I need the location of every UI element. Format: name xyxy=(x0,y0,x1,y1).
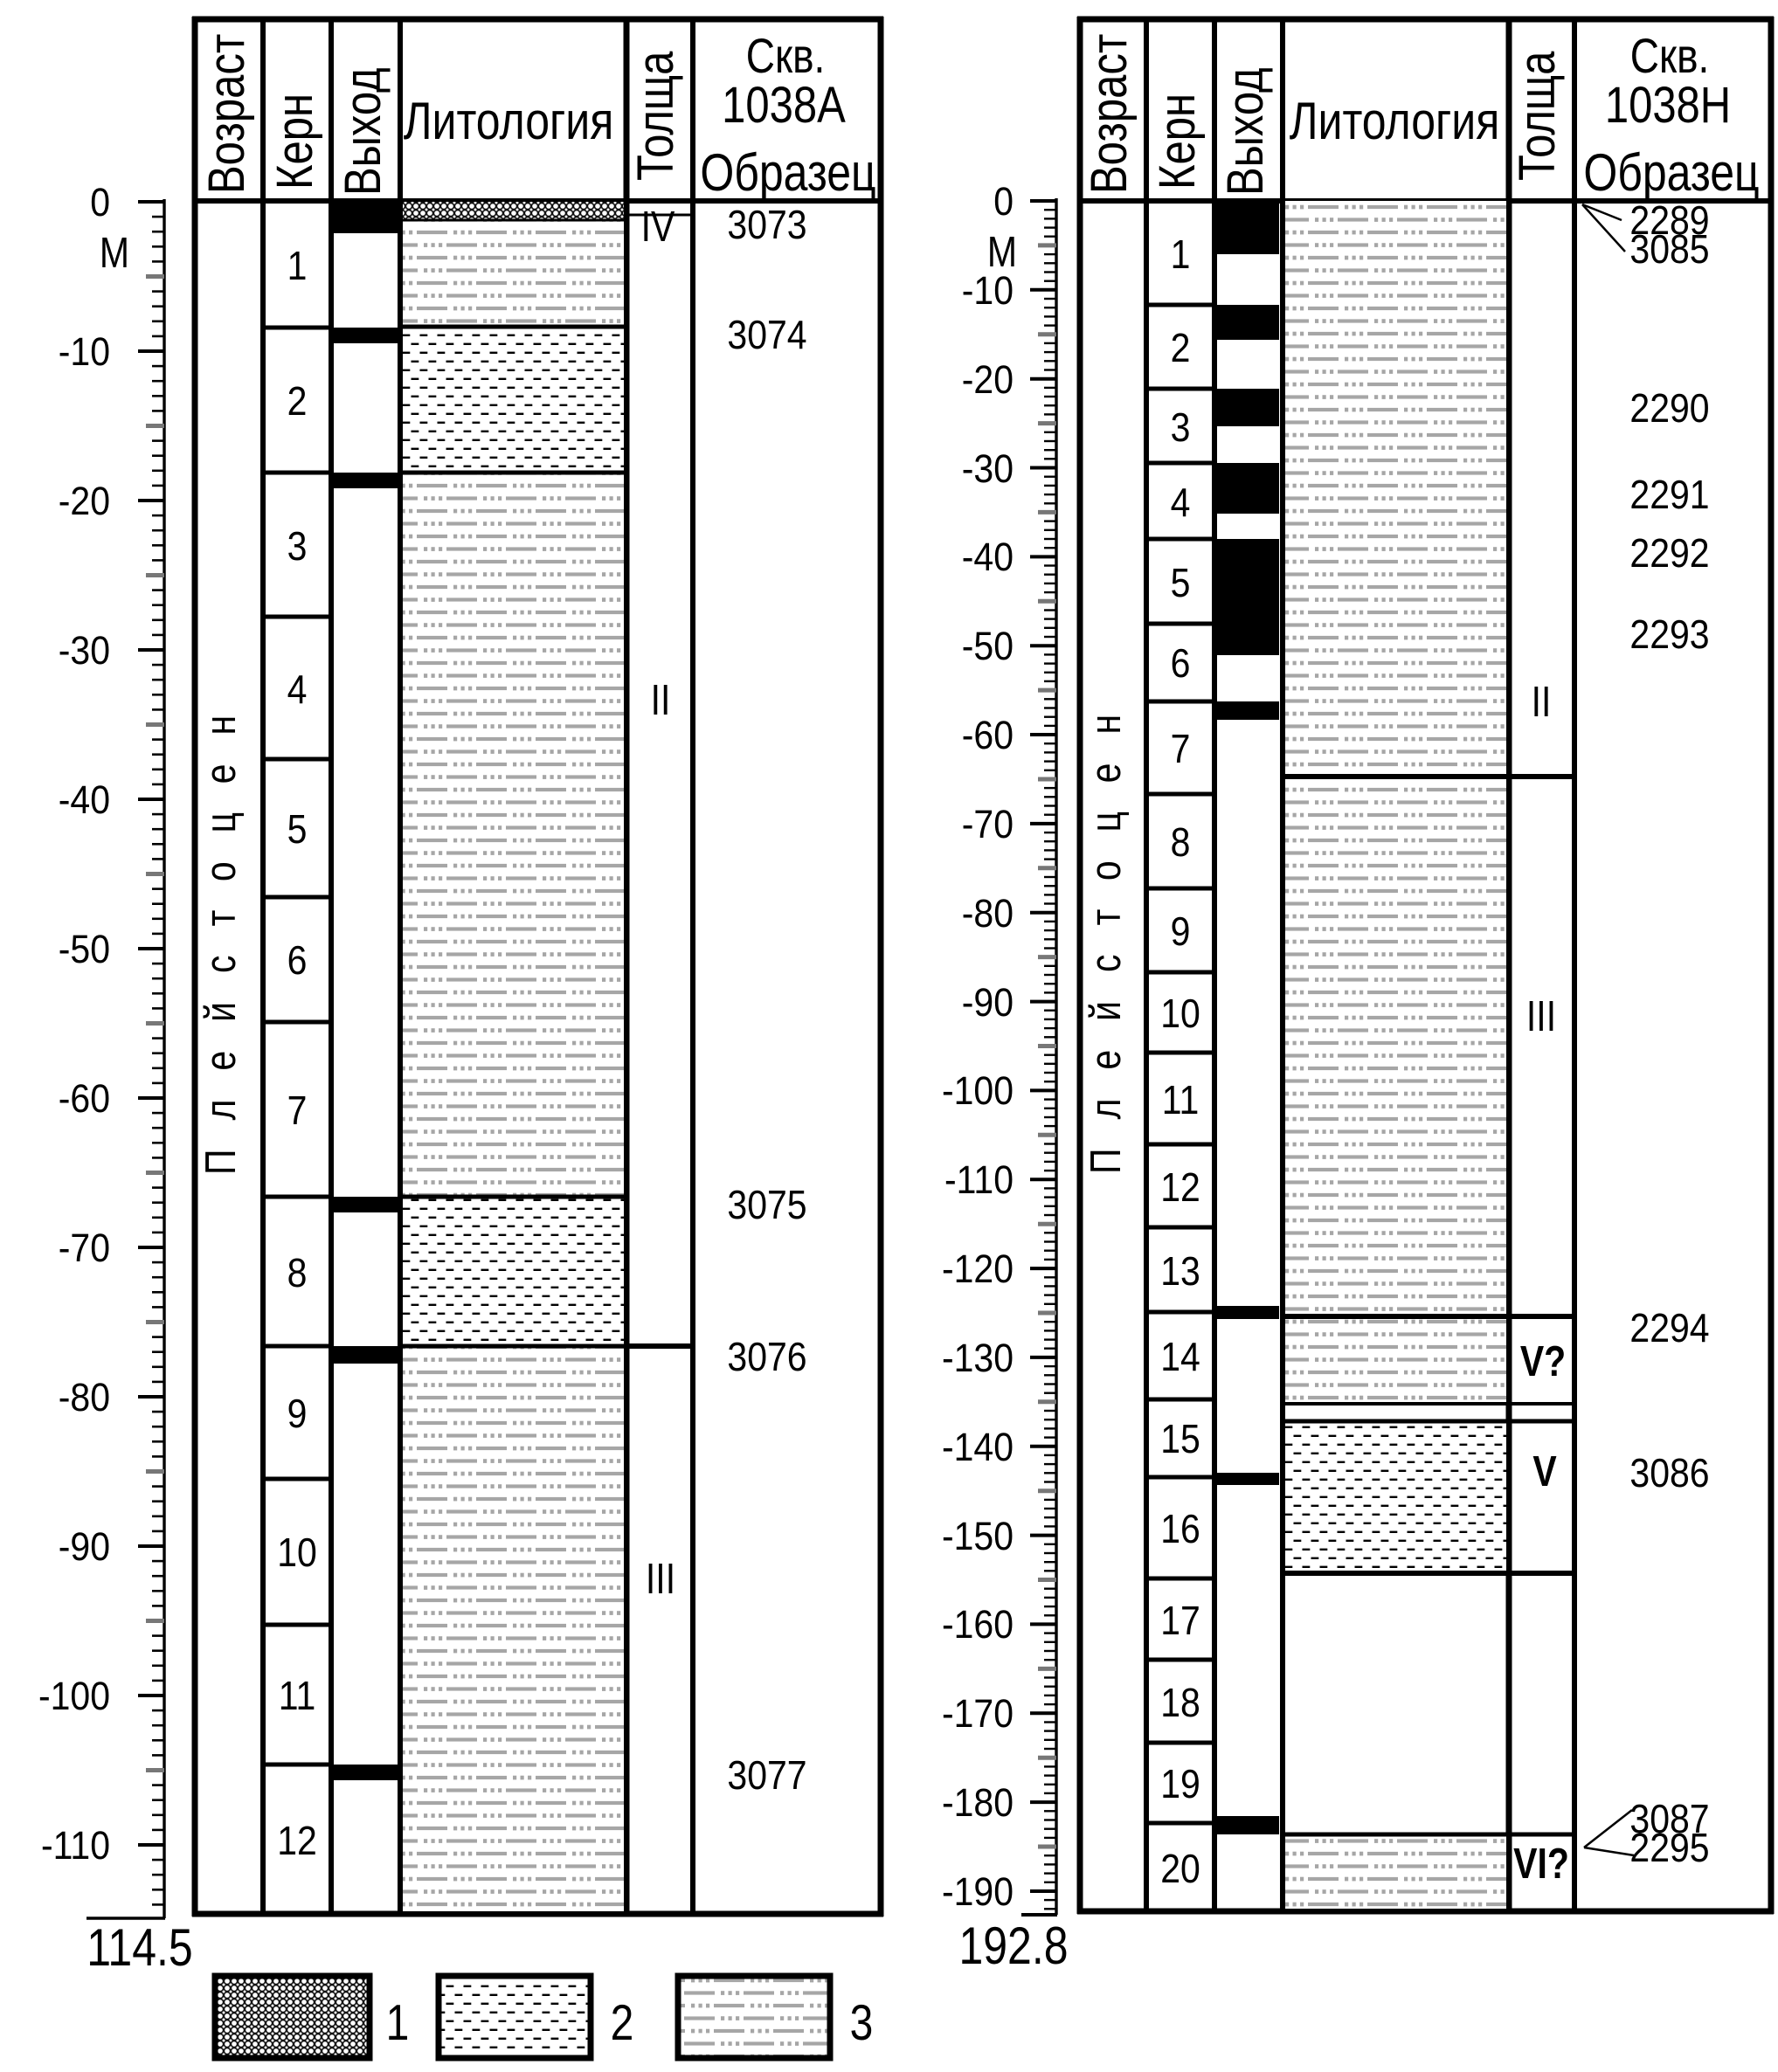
svg-text:2290: 2290 xyxy=(1629,387,1709,432)
svg-text:12: 12 xyxy=(277,1820,317,1864)
svg-text:-90: -90 xyxy=(59,1525,110,1569)
svg-text:III: III xyxy=(1526,991,1556,1039)
svg-text:-70: -70 xyxy=(59,1226,110,1270)
svg-text:3074: 3074 xyxy=(727,314,806,358)
svg-text:2294: 2294 xyxy=(1629,1307,1709,1351)
svg-text:0: 0 xyxy=(993,180,1014,224)
svg-text:3075: 3075 xyxy=(727,1184,806,1228)
svg-text:19: 19 xyxy=(1160,1763,1200,1807)
svg-text:8: 8 xyxy=(287,1252,308,1296)
svg-text:3077: 3077 xyxy=(727,1754,806,1799)
svg-text:1038Н: 1038Н xyxy=(1605,77,1731,134)
svg-text:114.5: 114.5 xyxy=(86,1918,192,1977)
svg-text:II: II xyxy=(651,675,671,723)
svg-text:18: 18 xyxy=(1160,1682,1200,1726)
svg-text:2291: 2291 xyxy=(1629,473,1709,518)
svg-text:3: 3 xyxy=(287,525,308,570)
svg-text:2: 2 xyxy=(287,380,308,425)
svg-text:10: 10 xyxy=(1160,992,1200,1037)
svg-text:-50: -50 xyxy=(962,625,1014,668)
svg-text:3: 3 xyxy=(850,1995,874,2051)
svg-text:9: 9 xyxy=(287,1392,308,1437)
svg-text:V?: V? xyxy=(1520,1336,1566,1385)
svg-text:-120: -120 xyxy=(942,1247,1014,1291)
svg-text:-110: -110 xyxy=(41,1824,110,1868)
svg-text:-170: -170 xyxy=(942,1692,1014,1736)
svg-text:Литология: Литология xyxy=(404,92,614,150)
svg-text:-60: -60 xyxy=(962,714,1014,757)
svg-text:Керн: Керн xyxy=(266,93,323,190)
svg-text:Образец: Образец xyxy=(700,143,875,202)
svg-text:Литология: Литология xyxy=(1290,92,1500,150)
svg-text:-160: -160 xyxy=(942,1603,1014,1647)
svg-text:1: 1 xyxy=(386,1995,410,2051)
svg-text:12: 12 xyxy=(1160,1166,1200,1211)
svg-text:Выход: Выход xyxy=(1217,67,1274,196)
svg-text:Скв.: Скв. xyxy=(746,29,826,83)
svg-text:-150: -150 xyxy=(942,1515,1014,1558)
svg-text:II: II xyxy=(1532,677,1552,725)
svg-text:Возраст: Возраст xyxy=(1081,34,1138,194)
svg-text:7: 7 xyxy=(287,1089,308,1134)
svg-text:Выход: Выход xyxy=(335,67,391,196)
svg-text:-80: -80 xyxy=(962,892,1014,936)
svg-text:-140: -140 xyxy=(942,1426,1014,1469)
svg-text:4: 4 xyxy=(287,668,308,713)
svg-text:-60: -60 xyxy=(59,1077,110,1121)
svg-text:-40: -40 xyxy=(962,535,1014,579)
svg-text:Толща: Толща xyxy=(627,51,684,181)
svg-text:3076: 3076 xyxy=(727,1336,806,1380)
svg-text:1038А: 1038А xyxy=(722,77,846,134)
svg-text:10: 10 xyxy=(277,1531,317,1576)
svg-text:3: 3 xyxy=(1171,406,1191,451)
svg-text:-190: -190 xyxy=(942,1870,1014,1914)
svg-text:2292: 2292 xyxy=(1629,532,1709,577)
svg-text:-20: -20 xyxy=(59,480,110,523)
svg-text:2: 2 xyxy=(1171,327,1191,371)
svg-text:-90: -90 xyxy=(962,981,1014,1025)
svg-text:192.8: 192.8 xyxy=(958,1917,1068,1975)
svg-text:4: 4 xyxy=(1171,481,1191,526)
svg-text:16: 16 xyxy=(1160,1508,1200,1552)
svg-text:3086: 3086 xyxy=(1629,1452,1709,1496)
svg-text:20: 20 xyxy=(1160,1848,1200,1892)
svg-text:Керн: Керн xyxy=(1149,93,1206,190)
svg-text:-10: -10 xyxy=(59,330,110,374)
svg-text:2295: 2295 xyxy=(1629,1827,1709,1871)
svg-text:6: 6 xyxy=(1171,642,1191,687)
svg-text:17: 17 xyxy=(1160,1599,1200,1644)
svg-text:13: 13 xyxy=(1160,1250,1200,1295)
svg-text:0: 0 xyxy=(90,181,110,224)
svg-text:V: V xyxy=(1532,1447,1556,1495)
svg-text:М: М xyxy=(987,227,1017,275)
svg-text:III: III xyxy=(646,1554,675,1602)
svg-text:-130: -130 xyxy=(942,1336,1014,1380)
svg-text:8: 8 xyxy=(1171,821,1191,866)
svg-text:5: 5 xyxy=(287,808,308,853)
svg-text:-70: -70 xyxy=(962,803,1014,846)
svg-text:15: 15 xyxy=(1160,1418,1200,1462)
svg-text:Толща: Толща xyxy=(1509,51,1566,181)
svg-text:-50: -50 xyxy=(59,928,110,971)
svg-text:9: 9 xyxy=(1171,910,1191,955)
svg-text:Плейстоцен: Плейстоцен xyxy=(196,687,244,1175)
svg-text:3073: 3073 xyxy=(727,204,806,248)
svg-text:Образец: Образец xyxy=(1583,143,1759,202)
svg-text:11: 11 xyxy=(1162,1079,1200,1123)
svg-text:-40: -40 xyxy=(59,778,110,822)
svg-text:-110: -110 xyxy=(944,1158,1014,1202)
svg-text:14: 14 xyxy=(1160,1336,1200,1380)
svg-text:Скв.: Скв. xyxy=(1630,29,1710,83)
svg-text:М: М xyxy=(100,228,129,276)
svg-text:VI?: VI? xyxy=(1513,1839,1569,1887)
svg-text:2293: 2293 xyxy=(1629,613,1709,658)
svg-text:-100: -100 xyxy=(38,1675,110,1718)
svg-text:-80: -80 xyxy=(59,1376,110,1419)
svg-text:-20: -20 xyxy=(962,358,1014,402)
svg-text:Плейстоцен: Плейстоцен xyxy=(1081,686,1129,1174)
svg-text:1: 1 xyxy=(1171,233,1191,278)
svg-text:IV: IV xyxy=(641,202,675,250)
svg-text:-180: -180 xyxy=(942,1781,1014,1825)
svg-text:2: 2 xyxy=(611,1995,634,2051)
svg-text:-30: -30 xyxy=(962,447,1014,491)
svg-text:7: 7 xyxy=(1171,728,1191,772)
svg-text:-30: -30 xyxy=(59,629,110,673)
svg-text:5: 5 xyxy=(1171,562,1191,606)
svg-text:-100: -100 xyxy=(942,1069,1014,1113)
svg-text:1: 1 xyxy=(287,245,308,289)
svg-text:3085: 3085 xyxy=(1629,228,1709,273)
svg-text:11: 11 xyxy=(279,1675,316,1719)
svg-text:Возраст: Возраст xyxy=(198,34,255,194)
svg-text:6: 6 xyxy=(287,939,308,984)
